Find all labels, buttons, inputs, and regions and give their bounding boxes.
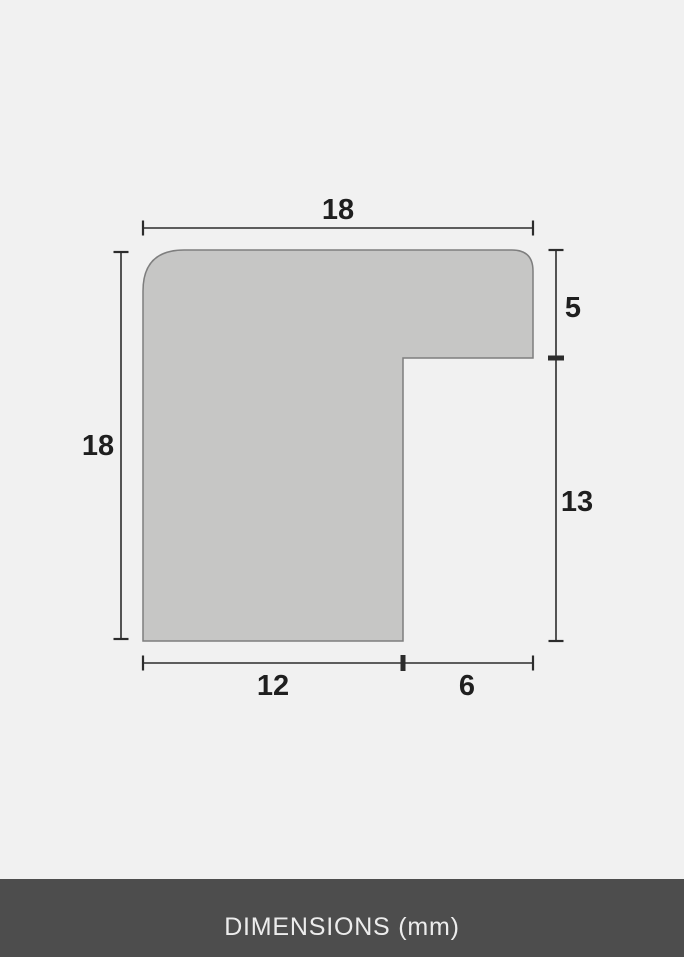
profile-diagram-svg: 18 18 5 13 12 6 [0,0,684,879]
dimension-label-bottom-inner: 12 [257,670,289,702]
footer-title: DIMENSIONS (mm) [224,913,460,942]
dimension-label-bottom-outer: 6 [459,670,475,702]
footer-bar: DIMENSIONS (mm) [0,879,684,957]
dimension-diagram: 18 18 5 13 12 6 [0,0,684,879]
dimension-line-bottom: 12 6 [143,655,533,702]
dimension-label-right-lower: 13 [561,486,593,518]
dimension-label-top-width: 18 [322,194,354,226]
dimension-label-left-height: 18 [82,430,114,462]
dimension-line-right: 5 13 [548,250,593,641]
moulding-profile-shape [143,250,533,641]
dimension-line-top: 18 [143,194,533,236]
dimension-label-right-upper: 5 [565,292,581,324]
dimension-line-left: 18 [82,252,129,639]
